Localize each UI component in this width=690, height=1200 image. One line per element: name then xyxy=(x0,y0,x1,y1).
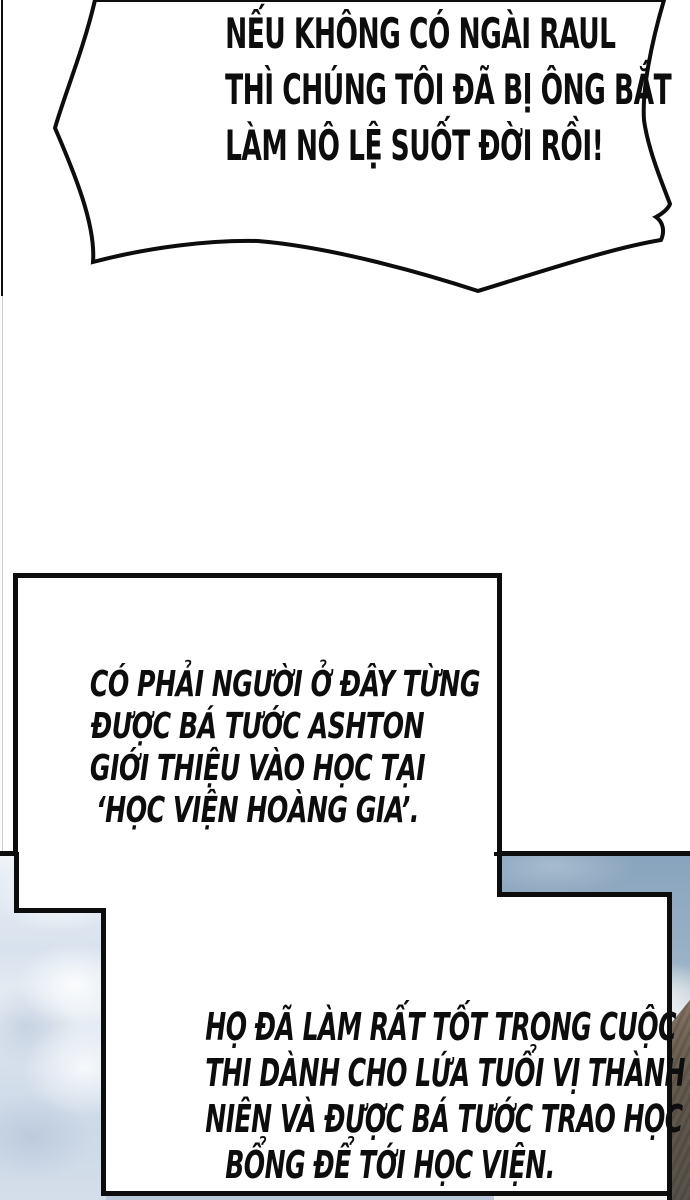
border-step-horizontal xyxy=(14,908,106,913)
comic-page: NẾU KHÔNG CÓ NGÀI RAUL THÌ CHÚNG TÔI ĐÃ … xyxy=(0,0,690,1200)
border-panel-left xyxy=(101,908,106,1196)
page-edge-line-faint xyxy=(2,296,3,852)
bottom-caption-line: HỌ ĐÃ LÀM RẤT TỐT TRONG CUỘC xyxy=(205,1004,575,1050)
bottom-caption-text: HỌ ĐÃ LÀM RẤT TỐT TRONG CUỘC THI DÀNH CH… xyxy=(205,1004,575,1188)
caption-box-line: GIỚI THIỆU VÀO HỌC TẠI xyxy=(90,748,425,790)
bottom-caption-line: BỔNG ĐỂ TỚI HỌC VIỆN. xyxy=(205,1142,575,1188)
border-sky-band-bottom xyxy=(497,892,672,897)
border-step-vertical xyxy=(14,851,19,913)
speech-bubble-line: LÀM NÔ LỆ SUỐT ĐỜI RỒI! xyxy=(225,118,515,174)
bottom-caption-line: NIÊN VÀ ĐƯỢC BÁ TƯỚC TRAO HỌC xyxy=(205,1096,575,1142)
caption-box-line: CÓ PHẢI NGƯỜI Ở ĐÂY TỪNG xyxy=(90,664,425,706)
caption-box: CÓ PHẢI NGƯỜI Ở ĐÂY TỪNG ĐƯỢC BÁ TƯỚC AS… xyxy=(13,573,502,852)
caption-box-text: CÓ PHẢI NGƯỜI Ở ĐÂY TỪNG ĐƯỢC BÁ TƯỚC AS… xyxy=(90,664,425,832)
speech-bubble-line: THÌ CHÚNG TÔI ĐÃ BỊ ÔNG BẮT xyxy=(225,62,515,118)
speech-bubble-text: NẾU KHÔNG CÓ NGÀI RAUL THÌ CHÚNG TÔI ĐÃ … xyxy=(225,6,515,174)
caption-box-line: ĐƯỢC BÁ TƯỚC ASHTON xyxy=(90,706,425,748)
border-sky-top-right xyxy=(494,851,690,856)
bottom-caption-line: THI DÀNH CHO LỨA TUỔI VỊ THÀNH xyxy=(205,1050,575,1096)
speech-bubble-line: NẾU KHÔNG CÓ NGÀI RAUL xyxy=(225,6,515,62)
caption-box-line: ‘HỌC VIỆN HOÀNG GIA’. xyxy=(90,790,425,832)
border-box-right-extension xyxy=(497,851,502,897)
border-panel-bottom xyxy=(101,1191,672,1196)
